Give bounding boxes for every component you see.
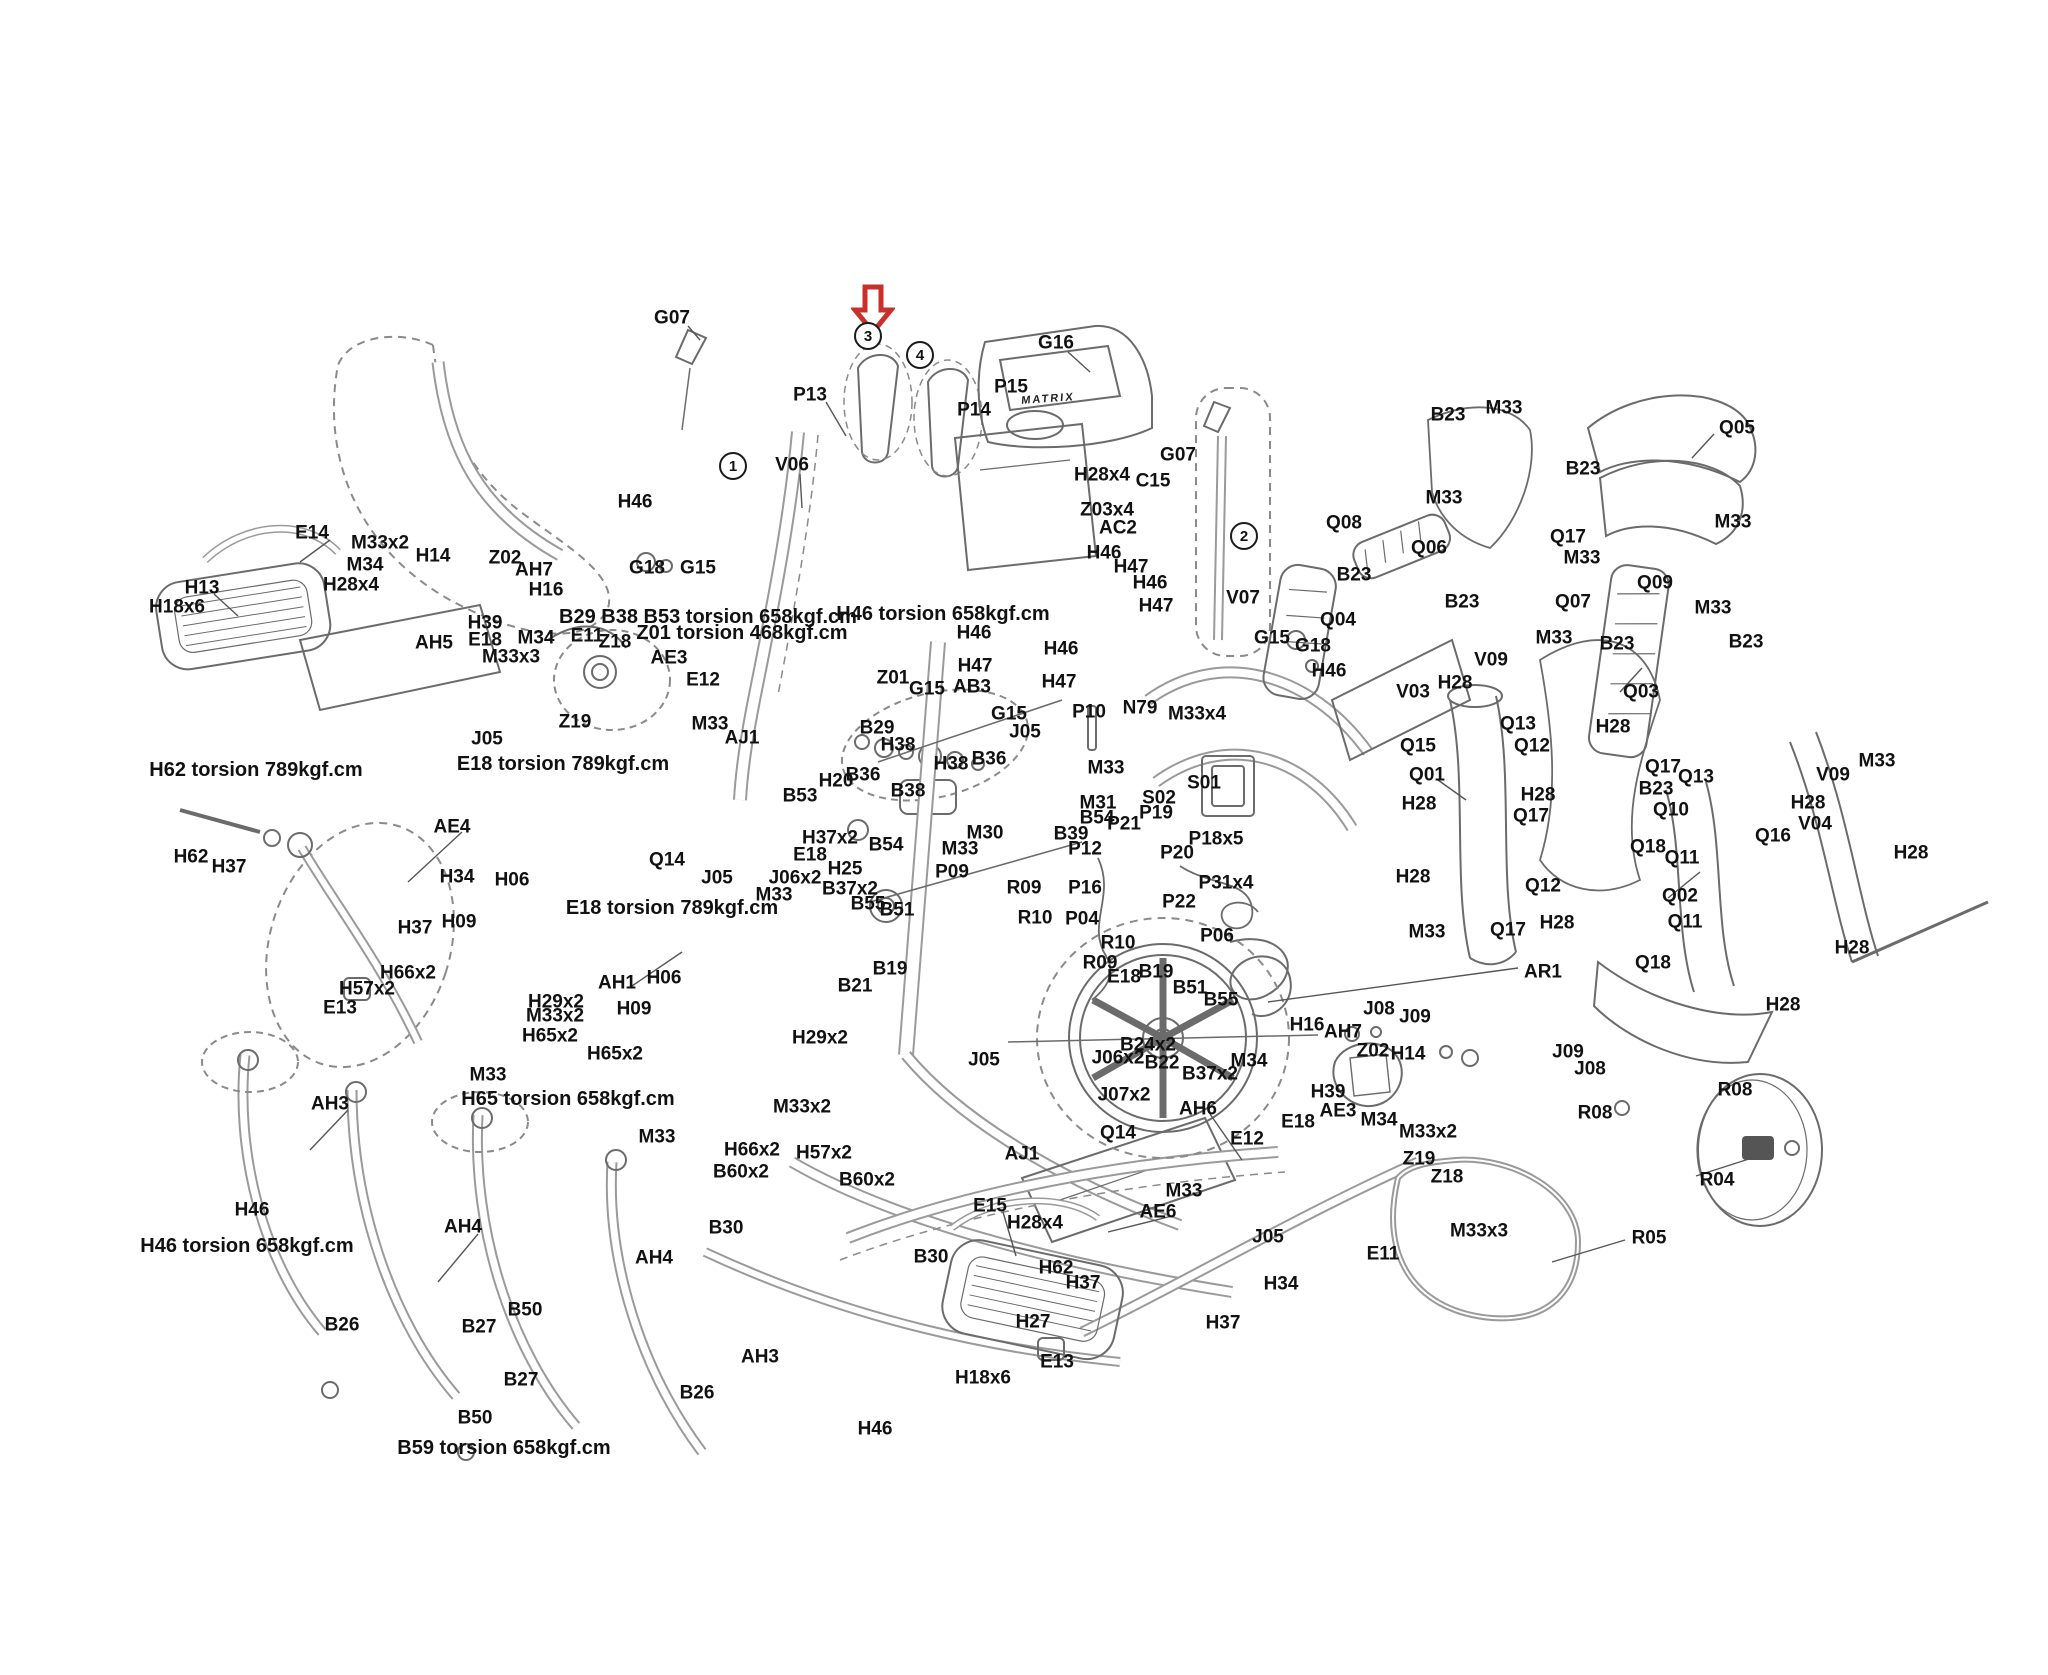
part-label-j08-183: J08 [1363, 1000, 1395, 1019]
part-label-b23-39: B23 [1729, 633, 1764, 652]
part-label-v09-214: V09 [1474, 651, 1508, 670]
part-label-m34-188: M34 [1361, 1111, 1398, 1130]
part-label-g15-72: G15 [909, 680, 945, 699]
part-label-ae4-63: AE4 [434, 818, 471, 837]
part-label-h18x6-45: H18x6 [149, 598, 205, 617]
part-label-v03-212: V03 [1396, 683, 1430, 702]
part-label-h38-78: H38 [934, 755, 969, 774]
part-label-h28-225: H28 [1596, 718, 1631, 737]
diagram-canvas: MATRIX G07P13V06H46G18G15P14P15G16H28x4C… [0, 0, 2048, 1675]
torsion-note-3: Z01 torsion 468kgf.cm [636, 623, 847, 643]
part-label-q05-31: Q05 [1719, 419, 1755, 438]
part-label-h14-43: H14 [416, 547, 451, 566]
part-label-h28x4-9: H28x4 [1074, 466, 1130, 485]
part-label-ae3-59: AE3 [651, 649, 688, 668]
part-label-g15-19: G15 [1254, 629, 1290, 648]
part-label-e18-190: E18 [1281, 1113, 1315, 1132]
part-label-q13-219: Q13 [1500, 715, 1536, 734]
part-label-m33-34: M33 [1564, 549, 1601, 568]
part-label-h13-44: H13 [185, 579, 220, 598]
part-label-e12-60: E12 [686, 671, 720, 690]
part-label-p22-115: P22 [1162, 893, 1196, 912]
part-label-s01-103: S01 [1187, 774, 1221, 793]
part-label-q18-207: Q18 [1635, 954, 1671, 973]
part-label-p20-111: P20 [1160, 844, 1194, 863]
part-label-j06x2-128: J06x2 [1092, 1049, 1145, 1068]
part-label-r08-201: R08 [1578, 1104, 1613, 1123]
part-label-q06-28: Q06 [1411, 539, 1447, 558]
part-label-q14-132: Q14 [1100, 1124, 1136, 1143]
torsion-note-5: E18 torsion 789kgf.cm [566, 898, 778, 918]
part-label-j05-177: J05 [1252, 1228, 1284, 1247]
part-label-e12-175: E12 [1230, 1130, 1264, 1149]
part-label-j08-200: J08 [1574, 1060, 1606, 1079]
part-label-h09-144: H09 [617, 1000, 652, 1019]
part-label-r08-202: R08 [1718, 1081, 1753, 1100]
part-label-q08-27: Q08 [1326, 514, 1362, 533]
part-label-q11-208: Q11 [1668, 913, 1703, 932]
part-label-r09-119: R09 [1007, 879, 1042, 898]
part-label-p09-89: P09 [935, 863, 969, 882]
part-label-h39-187: H39 [1311, 1083, 1346, 1102]
part-label-h46-153: H46 [235, 1201, 270, 1220]
torsion-note-6: H65 torsion 658kgf.cm [461, 1089, 674, 1109]
part-label-ah6-176: AH6 [1179, 1100, 1217, 1119]
part-label-h37-179: H37 [1206, 1314, 1241, 1333]
part-label-z18-58: Z18 [599, 633, 632, 652]
part-label-q07-37: Q07 [1555, 593, 1591, 612]
part-label-h47-23: H47 [1042, 673, 1077, 692]
part-label-e15-166: E15 [973, 1197, 1007, 1216]
part-label-b50-160: B50 [508, 1301, 543, 1320]
part-label-h28x4-167: H28x4 [1007, 1214, 1063, 1233]
part-label-p21-108: P21 [1107, 815, 1141, 834]
part-label-j09-184: J09 [1399, 1008, 1431, 1027]
part-label-b23-227: B23 [1639, 780, 1674, 799]
callout-number-1: 1 [719, 452, 747, 480]
part-label-h09-69: H09 [442, 913, 477, 932]
part-label-j07x2-131: J07x2 [1098, 1086, 1151, 1105]
part-label-h06-68: H06 [495, 871, 530, 890]
part-label-h16-49: H16 [529, 581, 564, 600]
part-label-m33-88: M33 [942, 840, 979, 859]
part-label-g07-11: G07 [1160, 446, 1196, 465]
part-label-b22-129: B22 [1145, 1054, 1180, 1073]
torsion-note-1: E18 torsion 789kgf.cm [457, 754, 669, 774]
part-label-j05-134: J05 [968, 1051, 1000, 1070]
part-label-e18-91: E18 [793, 846, 827, 865]
part-label-b27-159: B27 [462, 1318, 497, 1337]
part-label-b19-124: B19 [1139, 963, 1174, 982]
part-label-h28-230: H28 [1396, 868, 1431, 887]
part-label-q15-218: Q15 [1400, 737, 1436, 756]
part-label-b19-98: B19 [873, 960, 908, 979]
part-label-g18-210: G18 [1295, 637, 1331, 656]
part-label-m33-146: M33 [639, 1128, 676, 1147]
part-label-h47-22: H47 [958, 657, 993, 676]
part-label-h28x4-46: H28x4 [323, 576, 379, 595]
part-label-q10-228: Q10 [1653, 801, 1689, 820]
part-label-m33-197: M33 [1409, 923, 1446, 942]
part-label-h16-181: H16 [1290, 1016, 1325, 1035]
torsion-note-4: H46 torsion 658kgf.cm [836, 604, 1049, 624]
part-label-h46-211: H46 [1312, 662, 1347, 681]
part-label-b55-126: B55 [1204, 991, 1239, 1010]
part-label-p15-7: P15 [994, 378, 1028, 397]
part-label-j05-75: J05 [1009, 723, 1041, 742]
part-label-q17-224: Q17 [1513, 807, 1549, 826]
part-label-ar1-196: AR1 [1524, 963, 1562, 982]
part-label-h28-240: H28 [1835, 939, 1870, 958]
part-label-b51-125: B51 [1173, 979, 1208, 998]
torsion-note-0: H62 torsion 789kgf.cm [149, 760, 362, 780]
part-label-h34-66: H34 [440, 868, 475, 887]
part-label-b23-29: B23 [1337, 566, 1372, 585]
part-label-h47-17: H47 [1139, 597, 1174, 616]
part-label-p19-109: P19 [1139, 804, 1173, 823]
part-label-e14-40: E14 [295, 524, 329, 543]
part-label-ah7-182: AH7 [1324, 1023, 1362, 1042]
part-label-h46-20: H46 [957, 624, 992, 643]
part-label-h37-169: H37 [1066, 1274, 1101, 1293]
part-label-e11-195: E11 [1367, 1245, 1400, 1264]
part-label-h34-178: H34 [1264, 1275, 1299, 1294]
part-label-m33-35: M33 [1715, 513, 1752, 532]
part-label-b23-216: B23 [1600, 635, 1635, 654]
part-label-m33x2-139: M33x2 [526, 1007, 584, 1026]
part-label-m33-38: M33 [1695, 599, 1732, 618]
part-label-m33-141: M33 [470, 1066, 507, 1085]
part-label-p10-100: P10 [1072, 703, 1106, 722]
part-label-b50-162: B50 [458, 1409, 493, 1428]
part-label-b60x2-150: B60x2 [839, 1171, 895, 1190]
part-label-ah3-163: AH3 [741, 1348, 779, 1367]
part-label-q17-198: Q17 [1490, 921, 1526, 940]
part-label-h62-64: H62 [174, 848, 209, 867]
part-label-q03-217: Q03 [1623, 683, 1659, 702]
part-label-m34-180: M34 [1231, 1052, 1268, 1071]
part-label-h65x2-145: H65x2 [587, 1045, 643, 1064]
part-label-b23-30: B23 [1445, 593, 1480, 612]
part-label-h20-81: H20 [819, 772, 854, 791]
part-label-ah4-156: AH4 [635, 1249, 673, 1268]
part-label-ab3-73: AB3 [953, 678, 991, 697]
part-label-h28-223: H28 [1402, 795, 1437, 814]
part-label-b23-32: B23 [1566, 460, 1601, 479]
part-label-q02-233: Q02 [1662, 887, 1698, 906]
part-label-p18x5-110: P18x5 [1189, 830, 1244, 849]
part-label-h46-16: H46 [1133, 574, 1168, 593]
part-label-h25-90: H25 [828, 860, 863, 879]
part-label-h66x2-147: H66x2 [724, 1141, 780, 1160]
part-label-ah3-152: AH3 [311, 1095, 349, 1114]
part-label-c15-10: C15 [1136, 472, 1171, 491]
part-label-r04-203: R04 [1700, 1171, 1735, 1190]
part-label-z18-193: Z18 [1431, 1168, 1464, 1187]
part-label-b30-154: B30 [709, 1219, 744, 1238]
part-label-z02-185: Z02 [1357, 1042, 1390, 1061]
part-label-h57x2-148: H57x2 [796, 1144, 852, 1163]
part-label-h57x2-137: H57x2 [339, 980, 395, 999]
part-label-h28-241: H28 [1766, 996, 1801, 1015]
part-label-q12-231: Q12 [1525, 877, 1561, 896]
part-label-b54-84: B54 [869, 836, 904, 855]
part-label-m33x2-151: M33x2 [773, 1098, 831, 1117]
part-label-v06-2: V06 [775, 456, 809, 475]
part-label-h37-67: H37 [398, 919, 433, 938]
part-label-h28-236: H28 [1791, 794, 1826, 813]
part-label-b51-97: B51 [880, 901, 915, 920]
part-label-q12-220: Q12 [1514, 737, 1550, 756]
part-label-q18-205: Q18 [1630, 838, 1666, 857]
part-label-q14-95: Q14 [649, 851, 685, 870]
part-label-ah1-142: AH1 [598, 974, 636, 993]
part-label-g16-8: G16 [1038, 334, 1074, 353]
part-label-b30-155: B30 [914, 1248, 949, 1267]
part-label-h18x6-172: H18x6 [955, 1369, 1011, 1388]
part-label-h06-143: H06 [647, 969, 682, 988]
part-label-m33-25: M33 [1486, 399, 1523, 418]
part-label-r10-121: R10 [1101, 934, 1136, 953]
part-label-m33x2-41: M33x2 [351, 534, 409, 553]
part-label-m33x4-102: M33x4 [1168, 705, 1226, 724]
part-label-h29x2-135: H29x2 [792, 1029, 848, 1048]
part-label-e18-123: E18 [1107, 968, 1141, 987]
part-label-h27-170: H27 [1016, 1313, 1051, 1332]
part-label-e13-70: E13 [323, 999, 357, 1018]
part-label-m33x2-189: M33x2 [1399, 1123, 1457, 1142]
part-label-q11-206: Q11 [1665, 849, 1700, 868]
part-label-aj1-62: AJ1 [725, 729, 760, 748]
part-label-m33-174: M33 [1166, 1182, 1203, 1201]
part-label-p31x4-116: P31x4 [1199, 874, 1254, 893]
part-label-j05-56: J05 [471, 730, 503, 749]
part-label-p14-6: P14 [957, 401, 991, 420]
part-label-q17-33: Q17 [1550, 528, 1586, 547]
part-label-p06-117: P06 [1200, 927, 1234, 946]
part-label-q01-221: Q01 [1409, 766, 1445, 785]
part-label-m33x3-194: M33x3 [1450, 1222, 1508, 1241]
part-label-h37-65: H37 [212, 858, 247, 877]
part-label-b26-164: B26 [680, 1384, 715, 1403]
part-label-b53-83: B53 [783, 787, 818, 806]
part-label-m33-26: M33 [1426, 489, 1463, 508]
part-label-b27-161: B27 [504, 1371, 539, 1390]
part-label-ae3-191: AE3 [1320, 1102, 1357, 1121]
part-label-ae6-173: AE6 [1140, 1203, 1177, 1222]
part-label-q04-209: Q04 [1320, 611, 1356, 630]
torsion-note-8: B59 torsion 658kgf.cm [397, 1438, 610, 1458]
part-label-h28-222: H28 [1521, 786, 1556, 805]
part-label-v07-18: V07 [1226, 589, 1260, 608]
part-label-b23-24: B23 [1431, 406, 1466, 425]
part-label-q13-229: Q13 [1678, 768, 1714, 787]
part-label-r05-204: R05 [1632, 1229, 1667, 1248]
part-label-h38-77: H38 [881, 736, 916, 755]
part-label-b21-99: B21 [838, 977, 873, 996]
part-label-b38-82: B38 [891, 782, 926, 801]
part-label-h28-232: H28 [1540, 914, 1575, 933]
part-label-b36-79: B36 [972, 750, 1007, 769]
part-label-q17-226: Q17 [1645, 758, 1681, 777]
part-label-m33-235: M33 [1859, 752, 1896, 771]
callout-number-3: 3 [854, 322, 882, 350]
part-label-h46-3: H46 [618, 493, 653, 512]
part-label-h65x2-140: H65x2 [522, 1027, 578, 1046]
part-label-h28-239: H28 [1894, 844, 1929, 863]
torsion-note-7: H46 torsion 658kgf.cm [140, 1236, 353, 1256]
part-label-v04-237: V04 [1798, 815, 1832, 834]
part-label-e13-171: E13 [1040, 1353, 1074, 1372]
part-label-b39-118: B39 [1054, 825, 1089, 844]
callout-number-2: 2 [1230, 522, 1258, 550]
part-label-aj1-133: AJ1 [1005, 1145, 1040, 1164]
part-label-p13-1: P13 [793, 386, 827, 405]
part-label-j05-93: J05 [701, 869, 733, 888]
part-label-b60x2-149: B60x2 [713, 1163, 769, 1182]
part-label-ac2-13: AC2 [1099, 519, 1137, 538]
part-label-p04-114: P04 [1065, 910, 1099, 929]
part-label-h46-165: H46 [858, 1420, 893, 1439]
callout-number-4: 4 [906, 341, 934, 369]
part-label-m33-61: M33 [692, 715, 729, 734]
part-label-r10-120: R10 [1018, 909, 1053, 928]
part-label-ah4-157: AH4 [444, 1218, 482, 1237]
part-label-m33-215: M33 [1536, 629, 1573, 648]
part-label-p16-113: P16 [1068, 879, 1102, 898]
part-label-m34-42: M34 [347, 556, 384, 575]
part-label-g18-4: G18 [629, 559, 665, 578]
part-label-v09-234: V09 [1816, 766, 1850, 785]
part-label-z01-71: Z01 [877, 669, 910, 688]
part-label-h14-186: H14 [1391, 1045, 1426, 1064]
part-label-m33x3-55: M33x3 [482, 648, 540, 667]
part-label-z19-57: Z19 [559, 713, 592, 732]
part-label-m33-105: M33 [1088, 759, 1125, 778]
part-label-n79-101: N79 [1123, 699, 1158, 718]
part-label-h46-21: H46 [1044, 640, 1079, 659]
part-label-g07-0: G07 [654, 309, 690, 328]
part-label-q16-238: Q16 [1755, 827, 1791, 846]
part-label-q09-36: Q09 [1637, 574, 1673, 593]
part-label-g15-5: G15 [680, 559, 716, 578]
part-label-ah7-48: AH7 [515, 561, 553, 580]
part-label-h28-213: H28 [1438, 674, 1473, 693]
part-label-m34-53: M34 [518, 629, 555, 648]
part-label-b26-158: B26 [325, 1316, 360, 1335]
diagram-line-art [0, 0, 2048, 1675]
part-label-ah5-51: AH5 [415, 634, 453, 653]
